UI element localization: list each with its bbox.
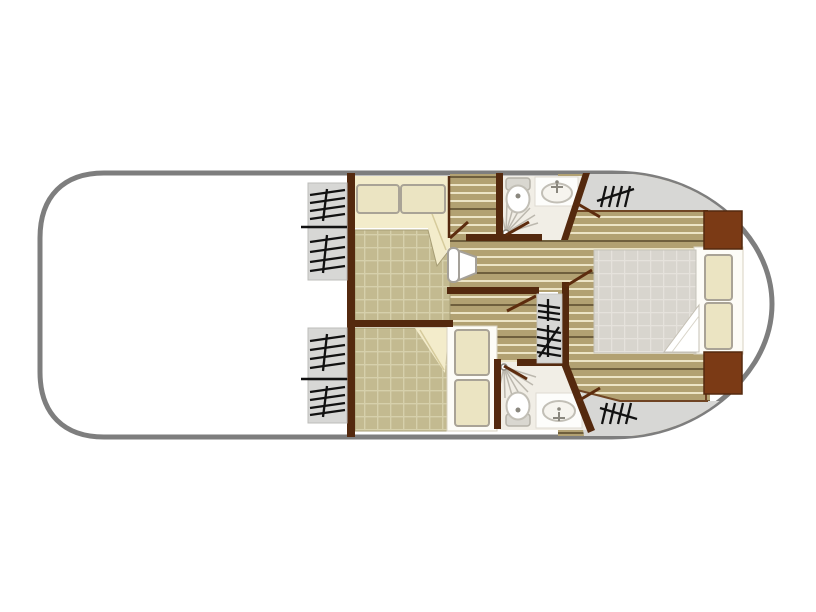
pillow-icon [455,330,489,375]
pillow-icon [401,185,445,213]
forward-cabin-bottom [355,326,497,431]
boat-floor-plan [0,0,816,612]
floor-plan-canvas [0,0,816,612]
pillow-icon [455,380,489,426]
wardrobe-block-icon [704,211,742,249]
toilet-icon [506,178,530,213]
forward-cabin-top [355,176,450,326]
pillow-icon [705,255,732,300]
pillow-icon [357,185,399,213]
pillow-icon [705,303,732,349]
washbasin-icon [535,177,578,206]
wardrobe-block-icon [704,352,742,394]
toilet-icon [506,393,530,427]
central-steps [537,294,562,363]
